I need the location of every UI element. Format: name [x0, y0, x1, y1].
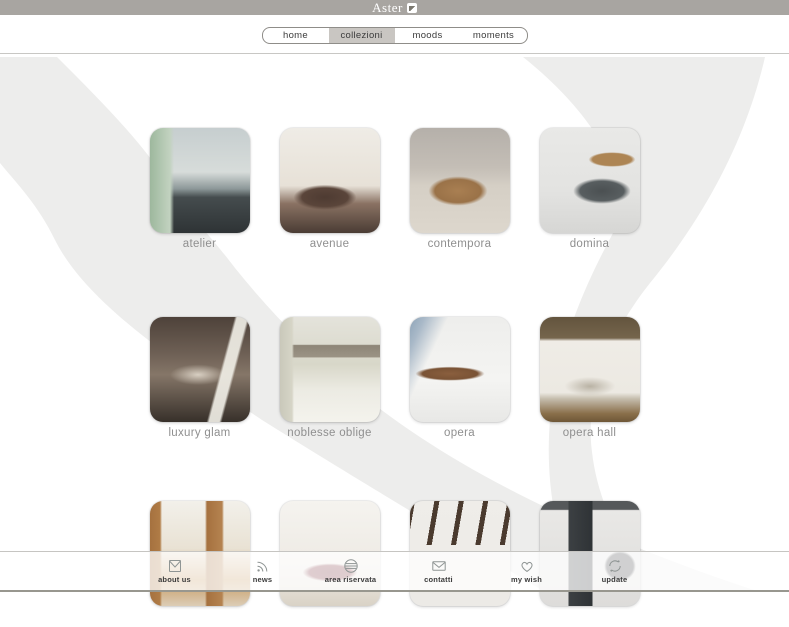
collection-thumbnail-domina[interactable] [540, 128, 640, 233]
footer-item-label: news [253, 575, 273, 584]
nav-item-home[interactable]: home [263, 28, 329, 43]
footer-item-area-riservata[interactable]: area riservata [307, 552, 395, 590]
collection-label: opera [444, 427, 475, 443]
collection-card-opera-hall: opera hall [540, 317, 640, 443]
collection-label: contempora [428, 238, 492, 254]
brand-logo-text: Aster [372, 0, 403, 15]
mail-icon [431, 558, 447, 574]
collection-thumbnail-luxury-glam[interactable] [150, 317, 250, 422]
collection-thumbnail-contempora[interactable] [410, 128, 510, 233]
footer-item-label: my wish [511, 575, 542, 584]
brand-logo[interactable]: Aster [372, 0, 417, 15]
collection-label: atelier [183, 238, 216, 254]
collection-card-luxury-glam: luxury glam [150, 317, 250, 443]
collection-thumbnail-opera-hall[interactable] [540, 317, 640, 422]
nav-item-collezioni[interactable]: collezioni [329, 28, 395, 43]
collections-grid: atelieravenuecontemporadomina luxury gla… [0, 54, 789, 627]
nav-strip: homecollezionimoodsmoments [0, 15, 789, 54]
collection-card-opera: opera [410, 317, 510, 443]
footer-item-contatti[interactable]: contatti [395, 552, 483, 590]
collection-thumbnail-opera[interactable] [410, 317, 510, 422]
collection-label: luxury glam [168, 427, 230, 443]
heart-icon [519, 558, 535, 574]
collection-thumbnail-avenue[interactable] [280, 128, 380, 233]
footer-item-label: area riservata [325, 575, 377, 584]
collection-label: opera hall [563, 427, 617, 443]
lines-circle-icon [343, 558, 359, 574]
footer-item-label: update [602, 575, 628, 584]
footer-item-label: contatti [424, 575, 453, 584]
nav-item-moments[interactable]: moments [461, 28, 527, 43]
footer-item-about-us[interactable]: about us [131, 552, 219, 590]
collection-label: noblesse oblige [287, 427, 371, 443]
collections-row-2: luxury glamnoblesse obligeoperaopera hal… [0, 317, 789, 443]
footer-item-update[interactable]: update [571, 552, 659, 590]
top-brand-bar: Aster [0, 0, 789, 15]
footer-bar: about usnewsarea riservatacontattimy wis… [0, 551, 789, 592]
collection-thumbnail-atelier[interactable] [150, 128, 250, 233]
collection-label: avenue [310, 238, 350, 254]
footer-item-news[interactable]: news [219, 552, 307, 590]
brand-badge-icon [407, 3, 417, 13]
footer-item-my-wish[interactable]: my wish [483, 552, 571, 590]
collections-row-1: atelieravenuecontemporadomina [0, 128, 789, 254]
collection-card-avenue: avenue [280, 128, 380, 254]
refresh-icon [607, 558, 623, 574]
collection-card-domina: domina [540, 128, 640, 254]
collection-label: domina [570, 238, 610, 254]
footer-item-label: about us [158, 575, 191, 584]
nav-item-moods[interactable]: moods [395, 28, 461, 43]
collection-card-noblesse-oblige: noblesse oblige [280, 317, 380, 443]
main-nav: homecollezionimoodsmoments [262, 27, 528, 44]
collection-thumbnail-noblesse-oblige[interactable] [280, 317, 380, 422]
collection-card-contempora: contempora [410, 128, 510, 254]
collection-card-atelier: atelier [150, 128, 250, 254]
envelope-square-icon [167, 558, 183, 574]
rss-icon [255, 558, 271, 574]
